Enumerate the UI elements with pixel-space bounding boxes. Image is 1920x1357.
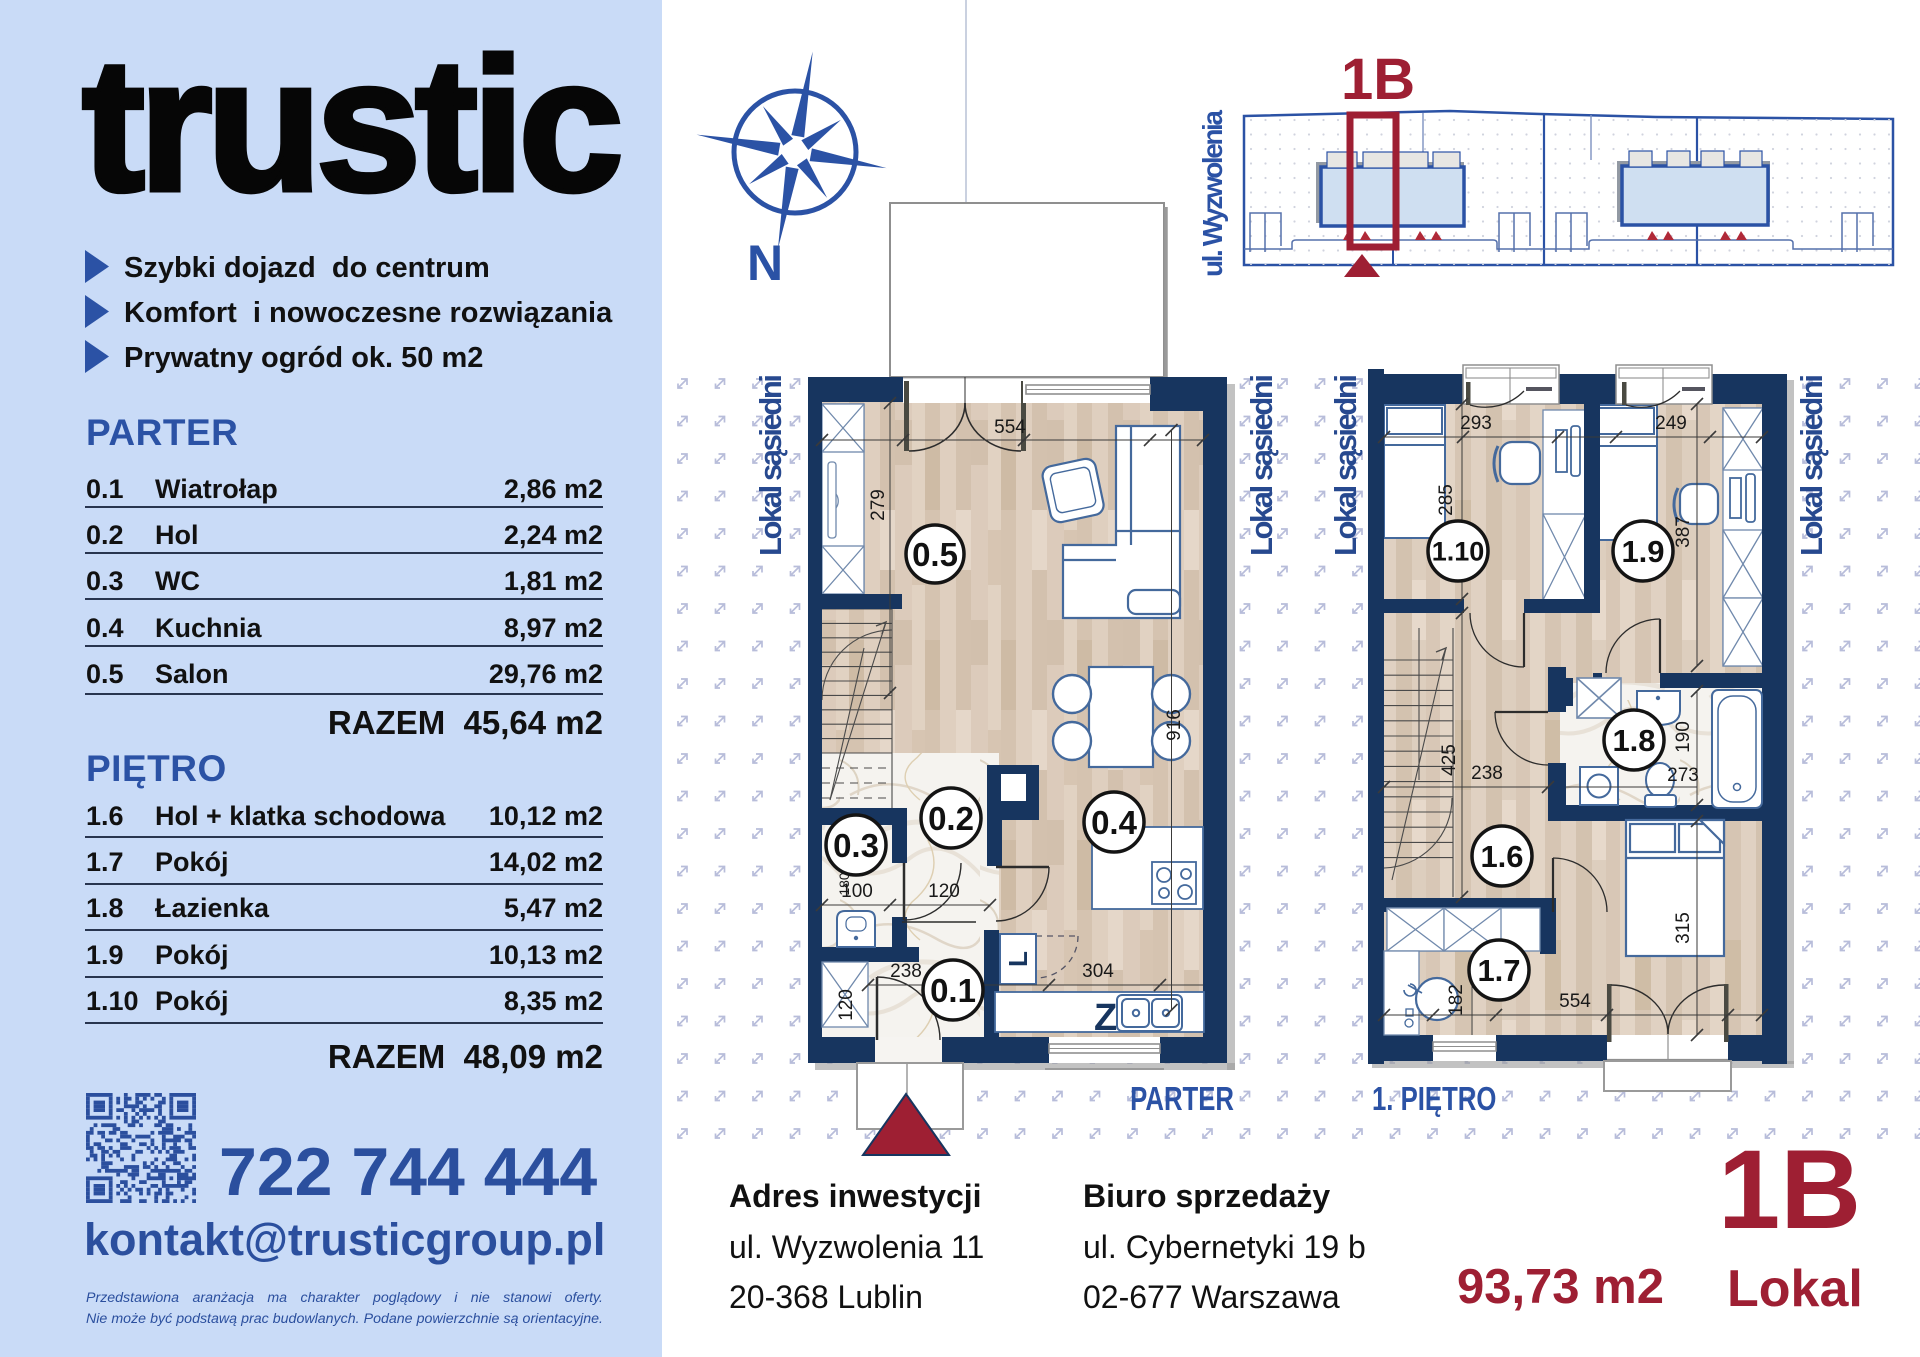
svg-text:238: 238 [1471,763,1503,784]
svg-text:0.5: 0.5 [912,536,958,573]
svg-text:120: 120 [928,881,960,902]
svg-text:1.7: 1.7 [1477,953,1520,988]
svg-text:ul. Cybernetyki 19 b: ul. Cybernetyki 19 b [1083,1229,1366,1265]
svg-text:PARTER: PARTER [1130,1081,1234,1118]
svg-text:0.3: 0.3 [833,827,879,864]
svg-text:387: 387 [1673,516,1694,548]
svg-text:304: 304 [1082,961,1114,982]
svg-text:20-368 Lublin: 20-368 Lublin [729,1279,923,1315]
svg-text:Adres inwestycji: Adres inwestycji [729,1178,982,1214]
svg-text:285: 285 [1436,484,1457,516]
svg-text:Z: Z [1094,997,1117,1039]
svg-text:293: 293 [1460,413,1492,434]
svg-text:182: 182 [1446,984,1467,1016]
svg-text:1.9: 1.9 [1621,534,1664,569]
svg-text:425: 425 [1439,744,1460,776]
svg-text:0.1: 0.1 [930,972,976,1009]
svg-text:ul. Wyzwolenia: ul. Wyzwolenia [1197,110,1228,277]
svg-text:N: N [747,235,783,291]
svg-text:Lokal sąsiedni: Lokal sąsiedni [1794,374,1829,556]
svg-text:Biuro sprzedaży: Biuro sprzedaży [1083,1178,1330,1214]
svg-text:1.10: 1.10 [1432,537,1485,567]
svg-text:1B: 1B [1718,1127,1861,1252]
svg-text:916: 916 [1164,709,1185,741]
svg-text:02-677 Warszawa: 02-677 Warszawa [1083,1279,1340,1315]
svg-text:Lokal sąsiedni: Lokal sąsiedni [1244,374,1279,556]
svg-text:ul. Wyzwolenia 11: ul. Wyzwolenia 11 [729,1229,984,1265]
svg-text:1.8: 1.8 [1612,723,1655,758]
svg-text:1.6: 1.6 [1480,839,1523,874]
svg-text:279: 279 [868,489,889,521]
svg-text:554: 554 [1559,991,1591,1012]
svg-text:315: 315 [1673,912,1694,944]
svg-text:249: 249 [1655,413,1687,434]
svg-text:93,73 m2: 93,73 m2 [1457,1260,1664,1314]
svg-text:Lokal sąsiedni: Lokal sąsiedni [753,374,788,556]
svg-text:554: 554 [994,417,1026,438]
svg-text:120: 120 [836,989,857,1021]
svg-text:L: L [1003,951,1033,967]
svg-text:0.2: 0.2 [928,800,974,837]
svg-text:273: 273 [1667,765,1699,786]
svg-text:1. PIĘTRO: 1. PIĘTRO [1372,1081,1496,1118]
svg-text:Lokal sąsiedni: Lokal sąsiedni [1328,374,1363,556]
svg-text:1B: 1B [1341,47,1415,112]
svg-text:190: 190 [1673,721,1694,753]
svg-text:Lokal: Lokal [1727,1260,1863,1318]
svg-text:0.4: 0.4 [1091,804,1138,841]
svg-text:238: 238 [890,961,922,982]
